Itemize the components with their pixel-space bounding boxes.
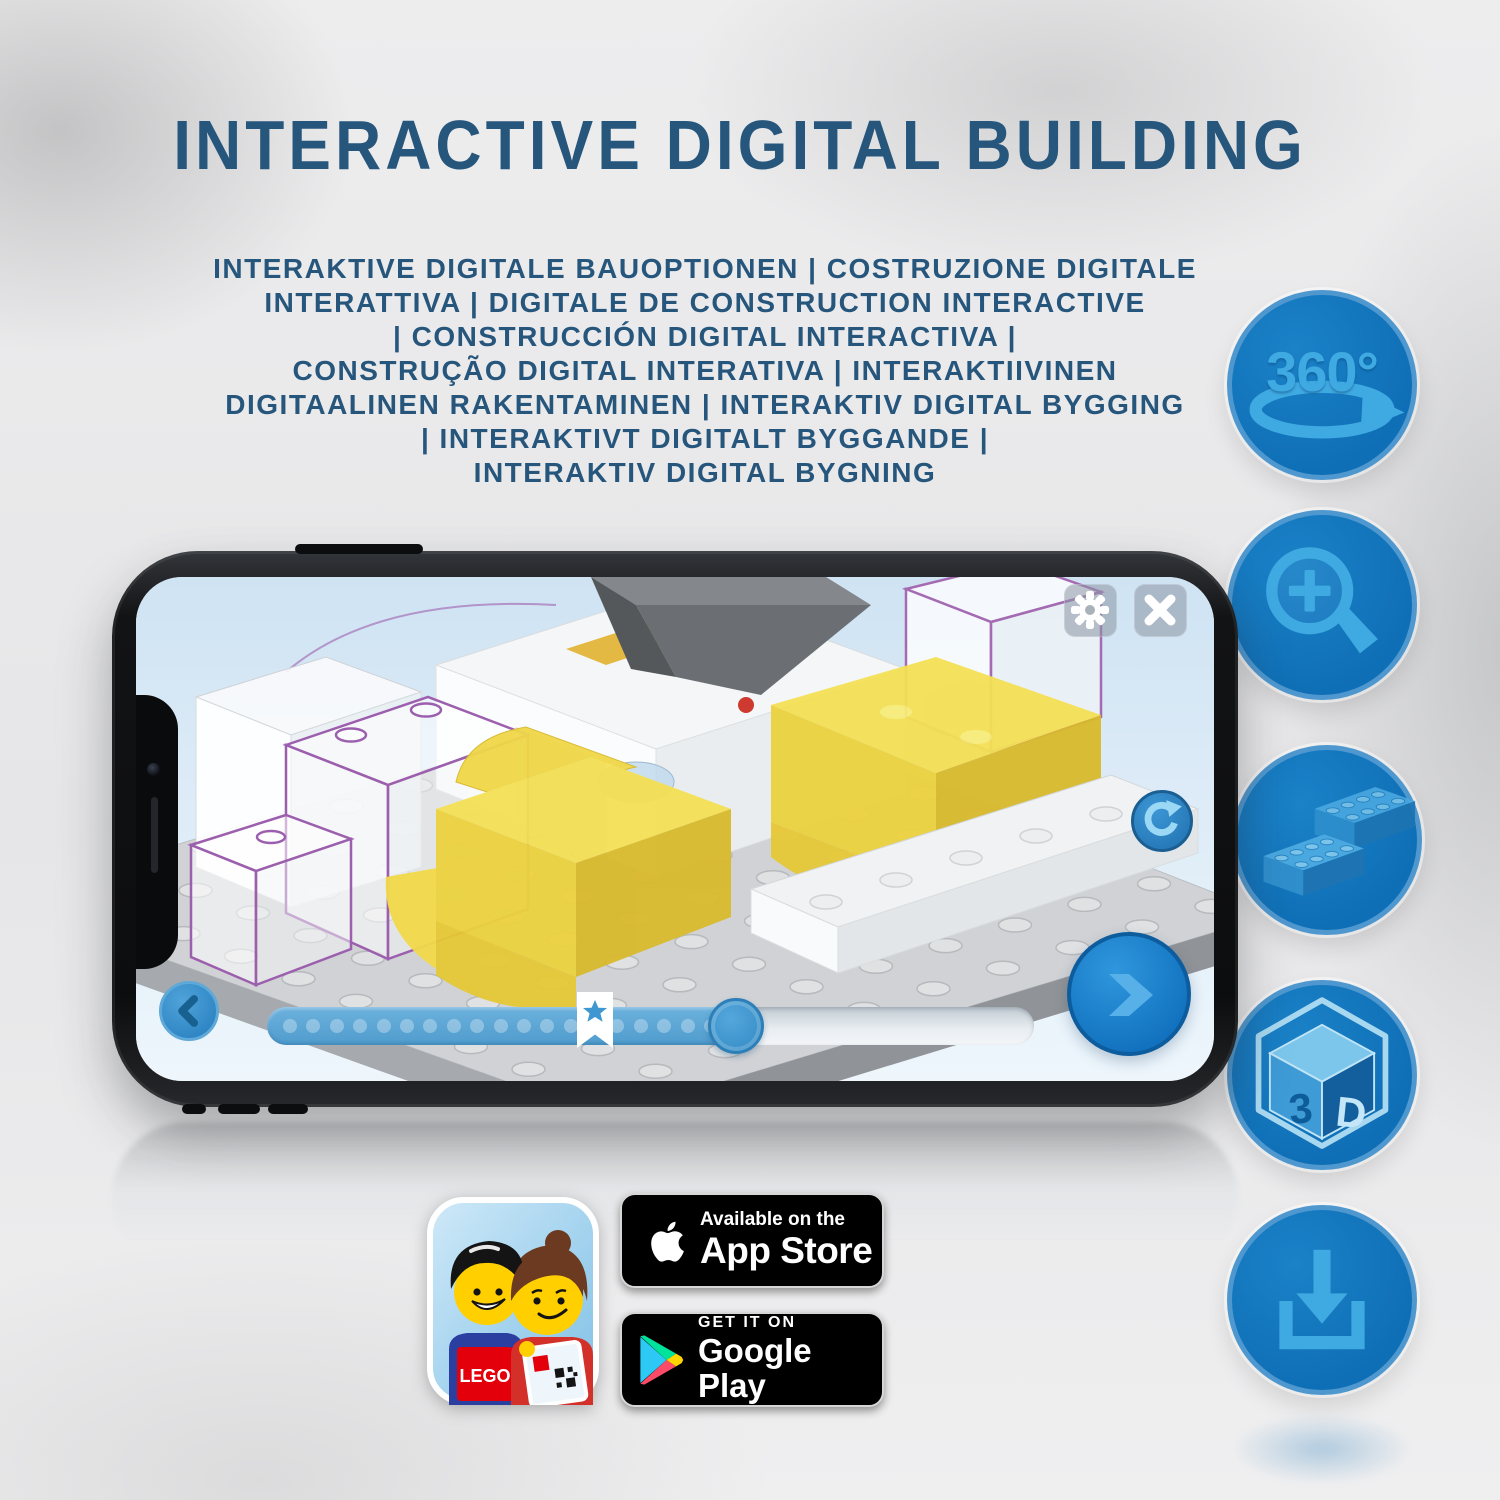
apple-logo-icon	[638, 1212, 686, 1270]
cube-face-3-label: 3	[1287, 1084, 1315, 1134]
volume-up-button	[218, 1104, 260, 1114]
360-degrees-label: 360°	[1232, 339, 1412, 404]
subtitle-line: | CONSTRUCCIÓN DIGITAL INTERACTIVA |	[0, 320, 1410, 354]
app-screen	[136, 577, 1214, 1081]
google-play-badge[interactable]: GET IT ON Google Play	[620, 1312, 884, 1407]
google-play-triangle-icon	[638, 1333, 684, 1387]
360-rotation-icon: 360°	[1227, 290, 1417, 480]
download-icon	[1232, 1210, 1412, 1390]
volume-down-button	[268, 1104, 308, 1114]
subtitle-line: INTERAKTIV DIGITAL BYGNING	[0, 456, 1410, 490]
reset-rotation-button[interactable]	[1131, 790, 1193, 852]
3d-view-feature-circle: 3 D	[1227, 980, 1417, 1170]
subtitle-line: INTERATTIVA | DIGITALE DE CONSTRUCTION I…	[0, 286, 1410, 320]
rotate-icon	[1139, 798, 1185, 844]
chevron-left-icon	[177, 994, 201, 1028]
power-button	[295, 544, 423, 554]
zoom-feature-circle	[1227, 510, 1417, 700]
app-store-line1: Available on the	[700, 1210, 872, 1230]
gear-icon	[1070, 590, 1110, 630]
google-play-line1: GET IT ON	[698, 1315, 882, 1332]
front-camera	[147, 763, 160, 776]
multilingual-subtitle: INTERAKTIVE DIGITALE BAUOPTIONEN | COSTR…	[0, 252, 1410, 490]
subtitle-line: DIGITAALINEN RAKENTAMINEN | INTERAKTIV D…	[0, 388, 1410, 422]
progress-step-dots	[283, 1019, 741, 1033]
earpiece-speaker	[151, 797, 158, 873]
lego-logo-text: LEGO	[459, 1366, 510, 1386]
next-step-button[interactable]	[1067, 932, 1191, 1056]
previous-step-button[interactable]	[159, 981, 219, 1041]
chevron-right-icon	[1103, 960, 1163, 1030]
3d-cube-icon	[1232, 985, 1412, 1165]
subtitle-line: | INTERAKTIVT DIGITALT BYGGANDE |	[0, 422, 1410, 456]
google-play-line2: Google Play	[698, 1334, 882, 1403]
mute-switch	[182, 1104, 206, 1114]
smartphone	[112, 551, 1238, 1107]
lego-app-icon[interactable]: LEGO	[427, 1197, 599, 1405]
page-title: INTERACTIVE DIGITAL BUILDING	[0, 105, 1480, 185]
lego-bricks-icon	[1237, 750, 1417, 930]
settings-button[interactable]	[1064, 584, 1117, 637]
subtitle-line: INTERAKTIVE DIGITALE BAUOPTIONEN | COSTR…	[0, 252, 1410, 286]
marketing-image: INTERACTIVE DIGITAL BUILDING INTERAKTIVE…	[0, 0, 1500, 1500]
icon-reflection	[1232, 1414, 1412, 1484]
download-feature-circle	[1227, 1205, 1417, 1395]
star-icon	[577, 994, 613, 1034]
lego-app-artwork: LEGO	[427, 1197, 599, 1405]
cube-face-d-label: D	[1334, 1088, 1369, 1139]
bricks-feature-circle	[1232, 745, 1422, 935]
close-button[interactable]	[1134, 584, 1187, 637]
subtitle-line: CONSTRUÇÃO DIGITAL INTERATIVA | INTERAKT…	[0, 354, 1410, 388]
magnifier-plus-icon	[1232, 515, 1412, 695]
close-icon	[1140, 590, 1180, 630]
app-store-line2: App Store	[700, 1232, 872, 1271]
progress-thumb[interactable]	[708, 998, 764, 1054]
phone-notch	[136, 695, 178, 969]
app-store-badge[interactable]: Available on the App Store	[620, 1193, 884, 1288]
lego-3d-build-scene[interactable]	[136, 577, 1214, 1081]
